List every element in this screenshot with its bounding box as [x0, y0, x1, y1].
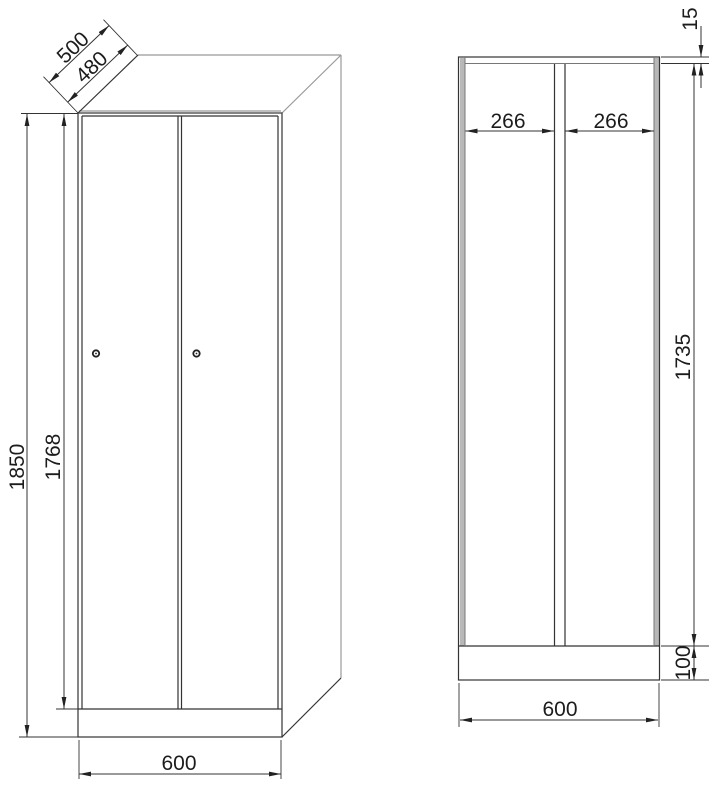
cabinet-front-outline — [78, 55, 341, 737]
dim-label-door-height: 1768 — [42, 434, 65, 481]
front-dimension-labels: 1850 1768 600 500 480 — [6, 27, 197, 775]
section-outline — [459, 57, 660, 680]
right-wall-fill — [654, 58, 659, 646]
dim-label-compartment-left: 266 — [490, 110, 525, 133]
left-door-lock-pin — [95, 353, 97, 355]
section-outer-box — [459, 57, 660, 680]
right-door-lock-pin — [196, 353, 198, 355]
front-extension-lines — [19, 20, 281, 779]
section-inner-lines — [465, 57, 654, 646]
front-oblique-view: 1850 1768 600 500 480 — [6, 20, 341, 779]
section-dimension-labels: 266 266 1735 100 15 600 — [490, 7, 702, 721]
dim-label-width-front: 600 — [161, 752, 196, 775]
bottom-right-depth-edge — [282, 678, 341, 737]
door-locks — [93, 350, 200, 356]
top-face-edges — [79, 55, 341, 678]
dim-label-compartment-right: 266 — [593, 110, 628, 133]
locker-dimension-drawing: 1850 1768 600 500 480 — [0, 0, 720, 792]
top-right-depth-edge — [282, 55, 341, 113]
drawing-canvas: 1850 1768 600 500 480 — [0, 0, 720, 792]
ext-depth-front — [44, 77, 79, 113]
dim-label-width-section: 600 — [542, 698, 577, 721]
ext-depth-back — [104, 20, 139, 56]
left-wall-fill — [460, 58, 465, 646]
front-face — [78, 113, 282, 737]
dim-label-plinth-height: 100 — [672, 645, 695, 680]
section-extension-lines — [459, 57, 709, 727]
dim-label-top-thickness: 15 — [679, 7, 702, 30]
dim-label-height-total: 1850 — [6, 444, 29, 491]
front-dimension-lines — [27, 26, 281, 774]
cross-section-view: 266 266 1735 100 15 600 — [459, 7, 710, 727]
dim-label-interior-height: 1735 — [672, 334, 695, 381]
